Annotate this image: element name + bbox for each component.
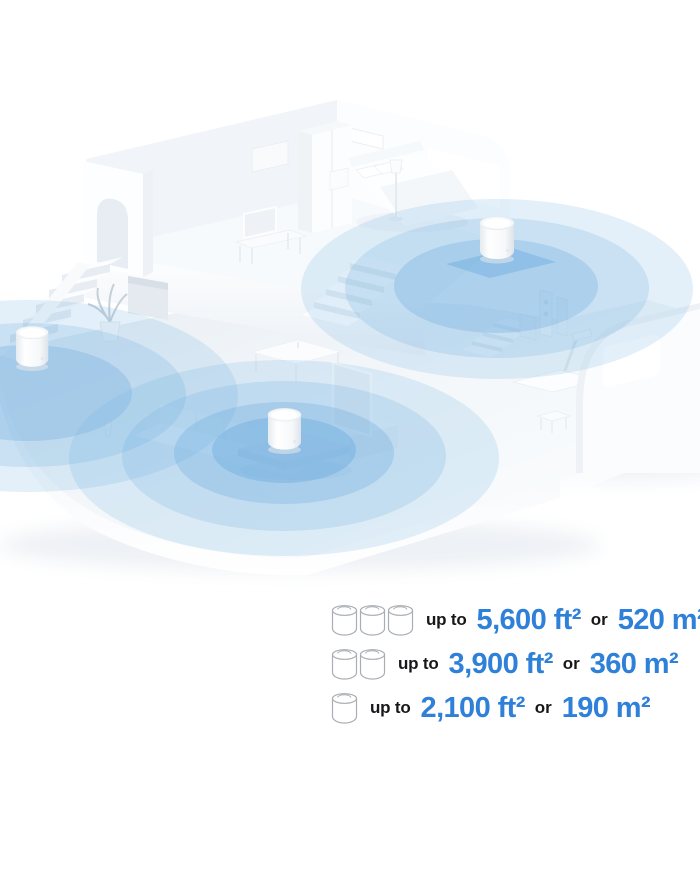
up-to-label: up to (426, 610, 467, 630)
deco-cylinder-icon (331, 604, 358, 637)
deco-pack-icons-3 (331, 604, 415, 637)
deco-pack-icons-1 (331, 692, 359, 725)
coverage-m-value: 520 m² (618, 604, 700, 637)
up-to-label: up to (370, 698, 411, 718)
coverage-row-3-pack: up to 5,600 ft² or 520 m² (331, 603, 700, 637)
coverage-row-2-pack: up to 3,900 ft² or 360 m² (331, 647, 700, 681)
up-to-label: up to (398, 654, 439, 674)
coverage-m-value: 190 m² (562, 692, 650, 725)
wifi-coverage-bottom (69, 360, 499, 556)
coverage-m-value: 360 m² (590, 648, 678, 681)
deco-unit-top (480, 216, 514, 263)
deco-unit-bottom (268, 408, 301, 454)
deco-cylinder-icon (331, 648, 358, 681)
coverage-ft-value: 3,900 ft² (449, 648, 553, 681)
deco-pack-icons-2 (331, 648, 387, 681)
house-illustration (0, 0, 700, 600)
deco-cylinder-icon (331, 692, 358, 725)
coverage-ft-value: 2,100 ft² (421, 692, 525, 725)
nightstand (330, 168, 348, 190)
coverage-legend: up to 5,600 ft² or 520 m² up to 3,900 ft… (331, 603, 700, 725)
or-label: or (535, 698, 552, 718)
deco-cylinder-icon (387, 604, 414, 637)
coverage-row-1-pack: up to 2,100 ft² or 190 m² (331, 691, 700, 725)
coverage-ft-value: 5,600 ft² (477, 604, 581, 637)
or-label: or (563, 654, 580, 674)
deco-cylinder-icon (359, 604, 386, 637)
deco-unit-left (16, 326, 48, 371)
deco-cylinder-icon (359, 648, 386, 681)
or-label: or (591, 610, 608, 630)
